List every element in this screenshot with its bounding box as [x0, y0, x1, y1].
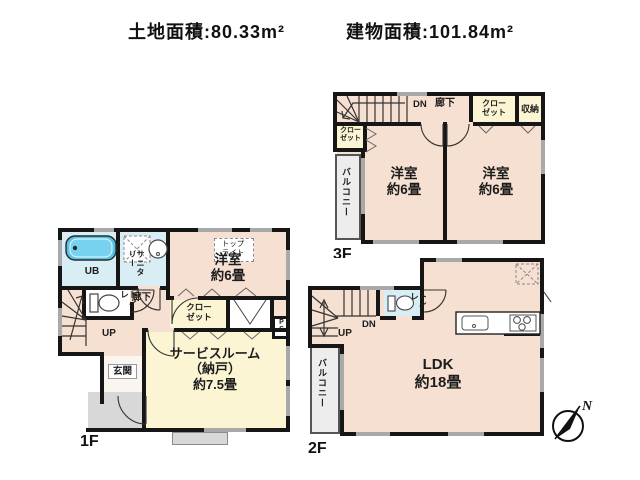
closet-label: クロー ゼット [474, 99, 514, 118]
toilet-label: トイレ [410, 292, 427, 318]
closet-label: クロー ゼット [172, 302, 226, 322]
floorplan-3f: DN 廊下 クロー ゼット 収納 クロー ゼット バルコニー 洋室 約6畳 洋室… [333, 92, 545, 262]
toilet-icon [90, 294, 119, 312]
land-area-label: 土地面積:80.33m² [128, 18, 285, 44]
balcony-label: バルコニー [317, 358, 326, 424]
stairs-down-label: DN [362, 319, 376, 330]
pipe-space-label: PS [278, 319, 285, 336]
stove-icon [510, 315, 536, 331]
floorplan-page: 土地面積:80.33m² 建物面積:101.84m² [0, 0, 640, 480]
compass: N [546, 394, 602, 450]
sanitary-label: サニタリー [128, 250, 144, 284]
stairs-down-label: DN [413, 99, 427, 110]
sink-icon [149, 240, 167, 258]
floorplan-2f: DN UP トイレ バルコニー LDK 約18畳 2F [308, 258, 544, 458]
bath-label: UB [78, 266, 106, 278]
building-area-label: 建物面積:101.84m² [346, 18, 514, 44]
closet-label: クロー ゼット [338, 127, 363, 144]
downspout-mark [544, 292, 551, 302]
door-arcs [421, 124, 469, 146]
western-room-label: 洋室 約6畳 [367, 166, 441, 198]
closet-door-marks [366, 126, 535, 152]
ldk-label: LDK 約18畳 [368, 356, 508, 391]
hallway-label: 廊下 [435, 98, 455, 110]
fridge-icon [516, 264, 538, 284]
compass-icon: N [546, 394, 602, 450]
entrance-label: 玄関 [108, 364, 137, 379]
western-room-label: 洋室 約6畳 [453, 166, 539, 198]
western-room-label: 洋室 約6畳 [178, 252, 278, 284]
balcony-label: バルコニー [341, 167, 350, 231]
north-label: N [581, 399, 593, 414]
storage-label: 収納 [519, 104, 541, 115]
stairs-icon [337, 96, 407, 122]
floor-label-1f: 1F [80, 433, 99, 451]
floorplan-1f: UB サニタリー トイレ 廊下 UP 玄関 クロー ゼット PS トップ ライト… [58, 228, 290, 448]
bathtub-icon [66, 236, 116, 260]
stairs-up-label: UP [102, 328, 116, 340]
stairs-up-label: UP [338, 328, 352, 340]
kitchen-counter-icon [456, 312, 540, 334]
floor-label-2f: 2F [308, 440, 327, 458]
stairs-icon [62, 290, 86, 346]
hallway-label: 廊下 [132, 292, 151, 303]
service-room-label: サービスルーム （納戸） 約7.5畳 [150, 346, 280, 392]
